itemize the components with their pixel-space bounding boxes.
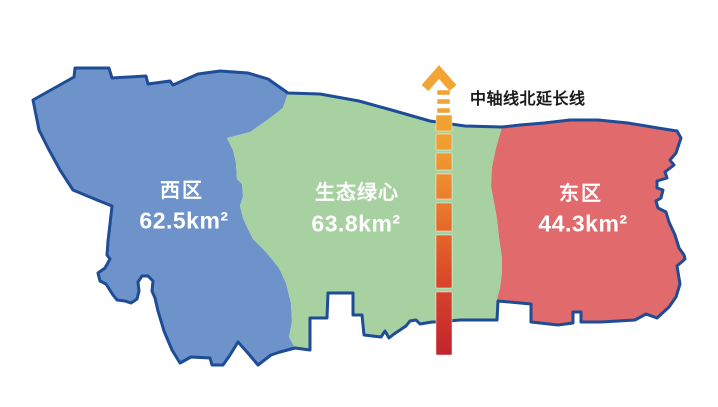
axis-segment <box>436 115 452 131</box>
axis-dash <box>437 108 450 113</box>
region-green-heart-name: 生态绿心 <box>315 183 399 203</box>
region-west-area: 62.5km² <box>139 210 228 233</box>
region-east-name: 东区 <box>559 184 603 204</box>
axis-segment <box>436 235 452 288</box>
region-east-area: 44.3km² <box>538 213 627 236</box>
axis-segment <box>436 292 452 355</box>
region-west-name: 西区 <box>160 181 204 201</box>
axis-segment <box>436 134 452 150</box>
planning-map: 西区 62.5km² 生态绿心 63.8km² 东区 44.3km² 中轴线北延… <box>0 0 718 407</box>
axis-segment <box>436 174 452 199</box>
axis-dash <box>437 99 450 104</box>
axis-segment <box>436 203 452 231</box>
axis-arrow-icon <box>425 72 453 88</box>
axis-segment <box>436 153 452 170</box>
axis-dash <box>437 90 450 95</box>
axis-label: 中轴线北延长线 <box>470 85 586 109</box>
region-green-heart-area: 63.8km² <box>311 213 400 236</box>
